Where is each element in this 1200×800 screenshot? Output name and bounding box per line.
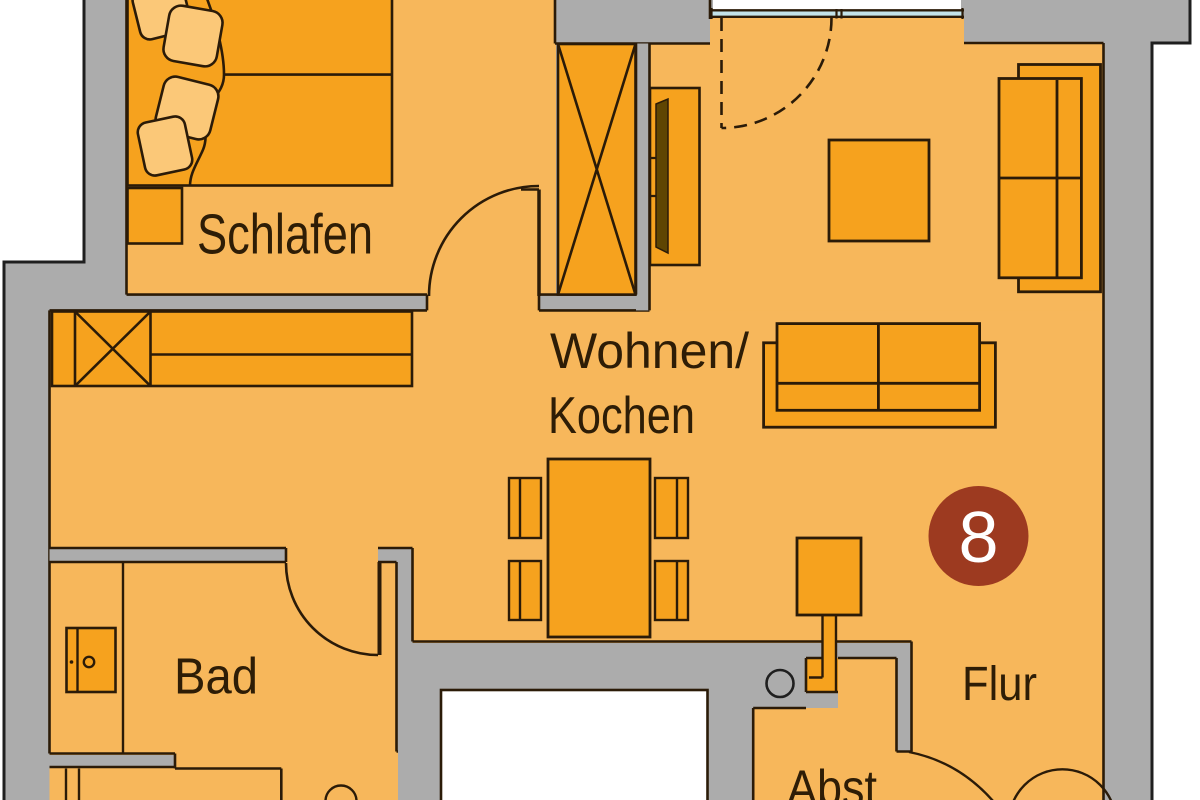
svg-text:Kochen: Kochen	[548, 387, 695, 445]
svg-text:8: 8	[958, 498, 998, 578]
svg-text:Abst: Abst	[787, 760, 877, 800]
svg-text:Bad: Bad	[174, 648, 258, 705]
svg-text:Schlafen: Schlafen	[197, 203, 373, 267]
svg-text:Flur: Flur	[962, 658, 1037, 711]
svg-text:Wohnen/: Wohnen/	[550, 323, 749, 379]
